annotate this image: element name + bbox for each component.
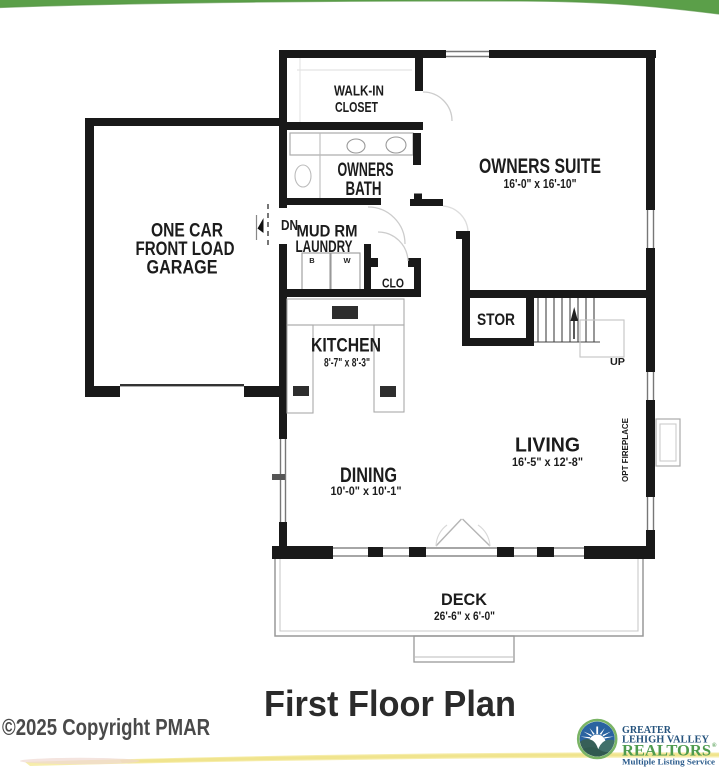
svg-text:Multiple Listing Service: Multiple Listing Service — [622, 757, 715, 767]
svg-text:LIVING: LIVING — [515, 435, 580, 457]
svg-text:CLO: CLO — [382, 276, 404, 291]
svg-text:®: ® — [712, 742, 717, 749]
svg-text:STOR: STOR — [477, 310, 515, 329]
svg-text:DECK: DECK — [441, 590, 488, 609]
svg-text:UP: UP — [610, 356, 625, 368]
svg-text:First Floor Plan: First Floor Plan — [264, 683, 516, 724]
svg-text:OPT FIREPLACE: OPT FIREPLACE — [620, 418, 630, 482]
svg-text:WALK-IN: WALK-IN — [334, 83, 384, 100]
svg-text:BATH: BATH — [346, 179, 382, 200]
svg-text:16'-0" x 16'-10": 16'-0" x 16'-10" — [504, 177, 577, 191]
svg-text:OWNERS: OWNERS — [338, 160, 394, 181]
svg-text:CLOSET: CLOSET — [335, 99, 378, 116]
svg-text:DINING: DINING — [340, 464, 397, 487]
svg-text:©2025 Copyright PMAR: ©2025 Copyright PMAR — [2, 714, 210, 740]
svg-text:W: W — [343, 256, 351, 265]
svg-text:8'-7" x 8'-3": 8'-7" x 8'-3" — [324, 358, 370, 370]
svg-text:KITCHEN: KITCHEN — [311, 336, 381, 357]
svg-text:OWNERS SUITE: OWNERS SUITE — [479, 155, 601, 178]
svg-text:16'-5" x 12'-8": 16'-5" x 12'-8" — [512, 455, 583, 469]
svg-text:26'-6" x 6'-0": 26'-6" x 6'-0" — [434, 611, 495, 623]
svg-text:10'-0" x 10'-1": 10'-0" x 10'-1" — [331, 486, 402, 498]
svg-text:B: B — [309, 256, 315, 265]
svg-text:GARAGE: GARAGE — [147, 258, 218, 279]
svg-text:DN: DN — [281, 217, 298, 234]
